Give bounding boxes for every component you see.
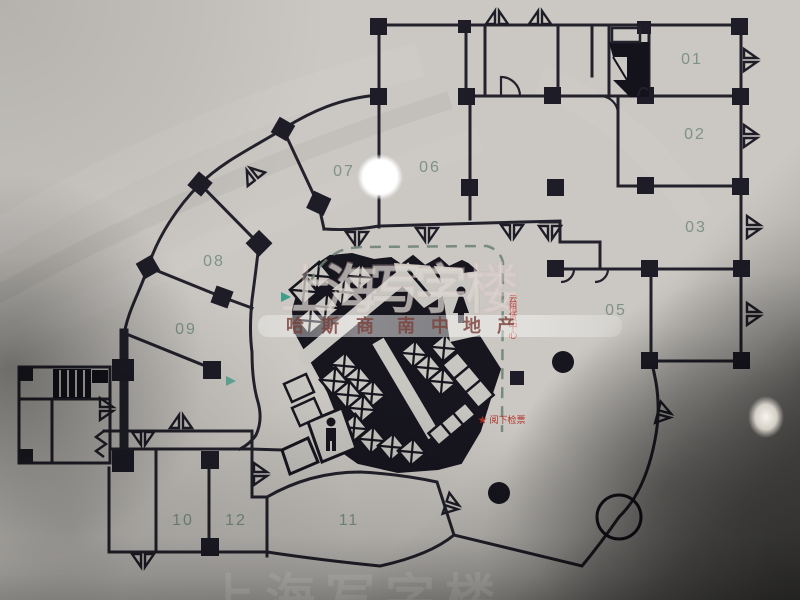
svg-text:楼: 楼 — [445, 570, 495, 600]
svg-text:写: 写 — [325, 570, 375, 600]
svg-text:上: 上 — [205, 570, 255, 600]
svg-text:字: 字 — [385, 570, 435, 600]
svg-text:海: 海 — [265, 570, 315, 600]
